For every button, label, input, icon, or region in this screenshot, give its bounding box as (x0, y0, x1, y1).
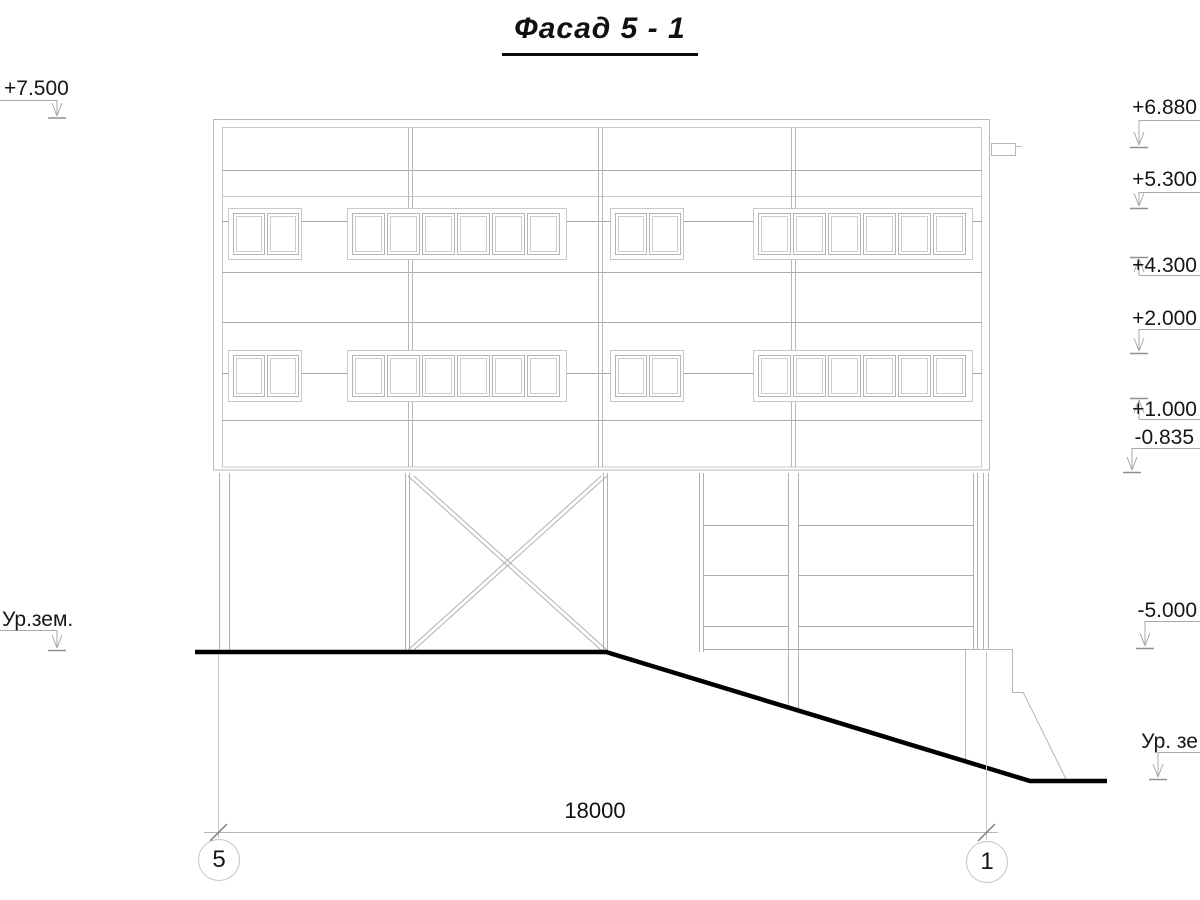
elevation-arrow-left-top (0, 100, 66, 118)
ground-level-label-left: Ур.зем. (2, 609, 73, 630)
elevation-label-5300: +5.300 (1132, 169, 1197, 190)
window-2pane (611, 209, 684, 260)
elevation-arrow-6880 (1130, 120, 1200, 148)
foundation-block (965, 649, 1066, 779)
elevation-arrow-ground-left (0, 630, 66, 651)
elevation-label-7500: +7.500 (4, 78, 69, 99)
elevation-label-1000: +1.000 (1132, 399, 1197, 420)
window-2pane (229, 351, 302, 402)
elevation-arrow-5300 (1130, 192, 1200, 209)
elevation-arrow-2000 (1130, 329, 1200, 354)
axis-bubble-1: 1 (966, 841, 1008, 883)
facade-drawing-sheet: Фасад 5 - 1 +7.500 Ур.зем. +6.880 +5.300… (0, 0, 1200, 900)
window-6pane (348, 351, 567, 402)
window-6pane (348, 209, 567, 260)
drawing-title-wrap: Фасад 5 - 1 (0, 12, 1200, 56)
window-band-upper (229, 209, 973, 260)
window-2pane (611, 351, 684, 402)
building-facade-outline (214, 120, 990, 471)
stair-rungs (703, 526, 973, 650)
drawing-title: Фасад 5 - 1 (502, 12, 697, 56)
window-6pane (754, 351, 973, 402)
ground-level-label-right: Ур. зе (1141, 731, 1198, 752)
elevation-arrow-ground-right (1149, 752, 1200, 780)
facade-mullions (409, 128, 796, 467)
elevation-label-6880: +6.880 (1132, 97, 1197, 118)
window-6pane (754, 209, 973, 260)
elevation-label-4300: +4.300 (1132, 255, 1197, 276)
elevation-label-neg5000: -5.000 (1137, 600, 1197, 621)
window-band-lower (229, 351, 973, 402)
elevation-arrow-5000 (1136, 621, 1200, 649)
facade-linework (0, 0, 1200, 900)
pilotis-columns (220, 473, 989, 712)
elevation-label-2000: +2.000 (1132, 308, 1197, 329)
elevation-label-neg0835: -0.835 (1134, 427, 1194, 448)
x-brace (408, 476, 607, 650)
dimension-value: 18000 (535, 798, 655, 824)
axis-bubble-5: 5 (198, 839, 240, 881)
ground-line (195, 652, 1107, 781)
window-2pane (229, 209, 302, 260)
elevation-arrow-0835 (1123, 448, 1200, 473)
roof-drain-protrusion (992, 144, 1022, 156)
